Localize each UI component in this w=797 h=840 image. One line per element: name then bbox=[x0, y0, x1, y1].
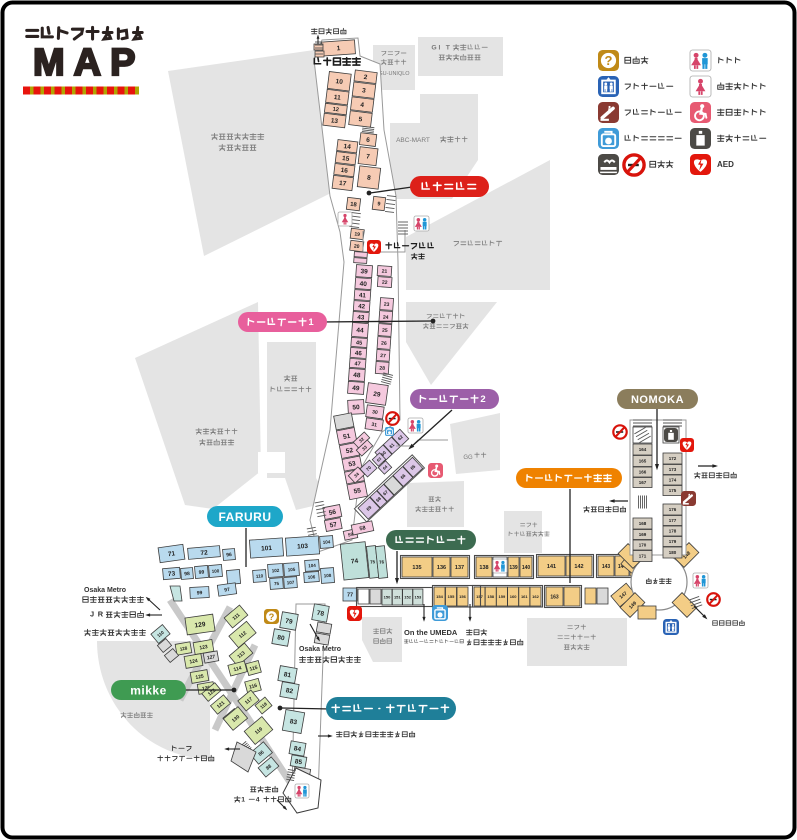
svg-text:167: 167 bbox=[639, 480, 647, 485]
svg-text:39: 39 bbox=[360, 268, 368, 276]
svg-text:10: 10 bbox=[335, 78, 343, 86]
svg-text:29: 29 bbox=[373, 391, 382, 399]
svg-text:42: 42 bbox=[358, 303, 366, 311]
svg-text:104: 104 bbox=[323, 539, 331, 545]
svg-text:?: ? bbox=[605, 53, 613, 68]
svg-text:152: 152 bbox=[404, 594, 411, 599]
svg-text:4: 4 bbox=[256, 796, 260, 803]
svg-text:45: 45 bbox=[356, 340, 363, 346]
svg-text:31: 31 bbox=[371, 422, 378, 429]
svg-text:27: 27 bbox=[380, 353, 386, 359]
svg-text:28: 28 bbox=[379, 365, 385, 371]
svg-text:105: 105 bbox=[288, 567, 296, 573]
svg-text:174: 174 bbox=[669, 478, 677, 483]
svg-text:FARURU: FARURU bbox=[219, 510, 272, 524]
svg-text:153: 153 bbox=[415, 594, 422, 599]
svg-text:25: 25 bbox=[382, 328, 388, 334]
svg-text:156: 156 bbox=[459, 594, 466, 599]
svg-text:180: 180 bbox=[669, 550, 677, 555]
svg-text:11: 11 bbox=[333, 94, 341, 102]
svg-text:155: 155 bbox=[448, 594, 455, 599]
svg-text:154: 154 bbox=[436, 594, 443, 599]
svg-text:166: 166 bbox=[639, 470, 647, 475]
svg-text:165: 165 bbox=[639, 459, 647, 464]
svg-text:141: 141 bbox=[547, 564, 556, 570]
svg-text:GU-UNIQLO: GU-UNIQLO bbox=[378, 71, 410, 77]
svg-text:96: 96 bbox=[226, 552, 232, 558]
svg-text:139: 139 bbox=[509, 565, 518, 571]
svg-text:15: 15 bbox=[342, 155, 350, 163]
svg-text:104: 104 bbox=[308, 563, 316, 569]
svg-text:72: 72 bbox=[200, 549, 208, 557]
svg-text:138: 138 bbox=[479, 565, 488, 571]
svg-text:177: 177 bbox=[669, 518, 677, 523]
svg-text:46: 46 bbox=[355, 350, 363, 358]
svg-text:178: 178 bbox=[669, 529, 677, 534]
svg-text:NOMOKA: NOMOKA bbox=[631, 394, 684, 406]
svg-text:158: 158 bbox=[487, 594, 494, 599]
svg-text:100: 100 bbox=[212, 568, 220, 574]
svg-text:172: 172 bbox=[669, 456, 677, 461]
svg-text:142: 142 bbox=[574, 564, 583, 570]
svg-text:GG: GG bbox=[463, 455, 473, 461]
svg-text:47: 47 bbox=[354, 361, 361, 367]
svg-text:R: R bbox=[98, 610, 104, 619]
svg-text:Osaka Metro: Osaka Metro bbox=[299, 646, 341, 653]
svg-text:14: 14 bbox=[343, 143, 351, 151]
svg-text:173: 173 bbox=[669, 467, 677, 472]
svg-text:106: 106 bbox=[308, 574, 316, 580]
svg-text:2: 2 bbox=[480, 394, 485, 405]
svg-text:1: 1 bbox=[308, 317, 314, 328]
svg-text:99: 99 bbox=[197, 590, 203, 596]
svg-text:169: 169 bbox=[639, 532, 647, 537]
svg-text:171: 171 bbox=[639, 554, 647, 559]
svg-text:75: 75 bbox=[274, 581, 280, 586]
svg-text:24: 24 bbox=[383, 315, 389, 321]
svg-text:21: 21 bbox=[381, 269, 387, 275]
svg-text:48: 48 bbox=[353, 372, 361, 380]
svg-text:150: 150 bbox=[384, 594, 391, 599]
svg-text:On the UMEDA: On the UMEDA bbox=[404, 628, 458, 637]
svg-text:41: 41 bbox=[359, 292, 367, 300]
svg-text:?: ? bbox=[269, 612, 275, 622]
svg-text:20: 20 bbox=[354, 243, 360, 250]
svg-text:103: 103 bbox=[297, 543, 309, 551]
svg-text:43: 43 bbox=[357, 314, 365, 322]
svg-text:G: G bbox=[431, 44, 436, 51]
svg-text:58: 58 bbox=[359, 525, 366, 532]
svg-text:137: 137 bbox=[455, 565, 464, 571]
svg-text:17: 17 bbox=[339, 180, 347, 188]
svg-text:44: 44 bbox=[356, 327, 364, 335]
svg-text:159: 159 bbox=[499, 594, 506, 599]
svg-text:102: 102 bbox=[272, 568, 280, 574]
svg-text:164: 164 bbox=[639, 447, 647, 452]
svg-text:AED: AED bbox=[717, 160, 734, 169]
svg-text:162: 162 bbox=[532, 594, 539, 599]
svg-text:19: 19 bbox=[354, 231, 360, 238]
svg-text:50: 50 bbox=[352, 404, 360, 411]
svg-text:175: 175 bbox=[669, 488, 677, 493]
svg-text:12: 12 bbox=[332, 107, 339, 114]
svg-text:170: 170 bbox=[639, 543, 647, 548]
svg-text:151: 151 bbox=[394, 594, 401, 599]
svg-text:77: 77 bbox=[347, 593, 353, 599]
svg-text:98: 98 bbox=[184, 571, 190, 577]
svg-text:30: 30 bbox=[372, 409, 379, 416]
svg-text:16: 16 bbox=[340, 167, 348, 175]
svg-text:MAP: MAP bbox=[33, 42, 144, 84]
svg-text:160: 160 bbox=[510, 594, 517, 599]
svg-text:161: 161 bbox=[521, 594, 528, 599]
svg-text:140: 140 bbox=[522, 565, 531, 571]
svg-text:143: 143 bbox=[602, 564, 611, 570]
svg-text:23: 23 bbox=[384, 302, 390, 308]
svg-text:J: J bbox=[90, 610, 94, 619]
svg-text:ABC-MART: ABC-MART bbox=[396, 137, 430, 144]
svg-text:157: 157 bbox=[476, 594, 483, 599]
svg-text:97: 97 bbox=[224, 587, 231, 594]
svg-text:13: 13 bbox=[330, 117, 338, 125]
svg-text:22: 22 bbox=[382, 280, 388, 286]
svg-text:107: 107 bbox=[287, 580, 295, 586]
svg-text:99: 99 bbox=[199, 570, 205, 576]
svg-text:40: 40 bbox=[359, 281, 367, 289]
svg-text:163: 163 bbox=[550, 594, 559, 600]
svg-text:Osaka Metro: Osaka Metro bbox=[84, 587, 126, 594]
svg-text:136: 136 bbox=[437, 565, 446, 571]
svg-text:135: 135 bbox=[412, 565, 421, 571]
svg-text:1: 1 bbox=[241, 796, 245, 803]
svg-text:110: 110 bbox=[256, 573, 264, 579]
svg-text:179: 179 bbox=[669, 539, 677, 544]
svg-text:I: I bbox=[439, 44, 441, 51]
svg-text:168: 168 bbox=[639, 521, 647, 526]
svg-text:176: 176 bbox=[669, 507, 677, 512]
svg-text:101: 101 bbox=[261, 545, 273, 553]
svg-text:mikke: mikke bbox=[130, 683, 167, 697]
svg-text:108: 108 bbox=[324, 573, 332, 579]
svg-text:73: 73 bbox=[168, 570, 176, 578]
svg-text:71: 71 bbox=[168, 550, 177, 558]
svg-text:49: 49 bbox=[352, 385, 360, 393]
svg-text:26: 26 bbox=[381, 341, 387, 347]
svg-text:74: 74 bbox=[351, 558, 359, 566]
